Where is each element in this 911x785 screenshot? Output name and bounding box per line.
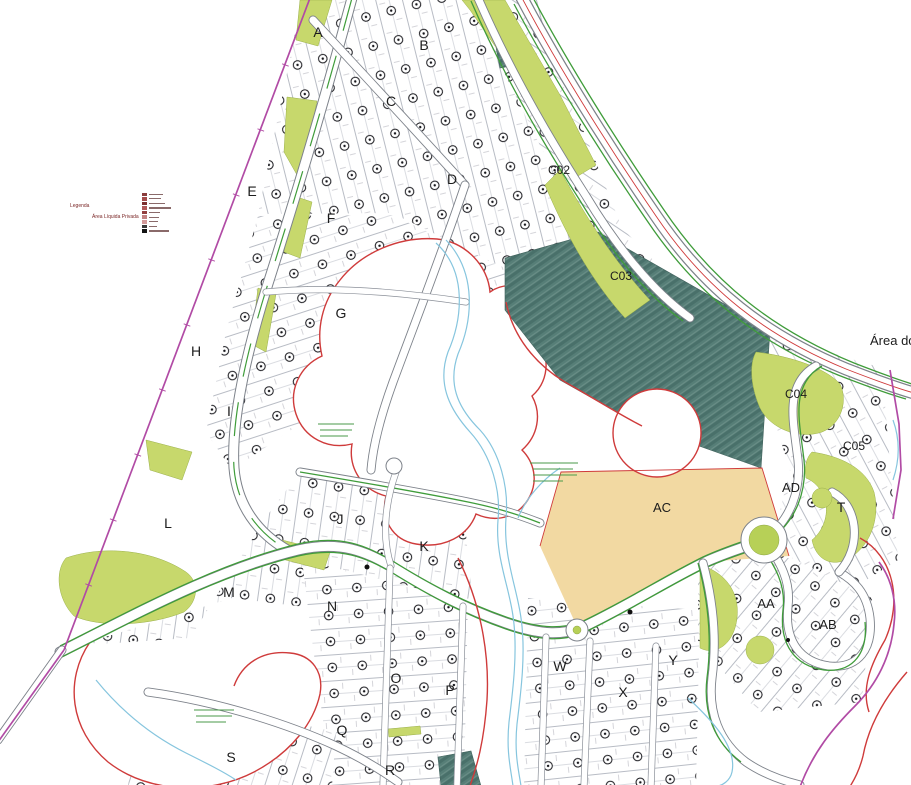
block-label-AD: AD — [782, 480, 800, 495]
legend-swatch — [142, 225, 147, 229]
legend-item-text — [149, 217, 159, 218]
block-label-G: G — [336, 305, 347, 321]
block-label-T: T — [837, 499, 846, 515]
block-label-AC: AC — [653, 500, 671, 515]
block-label-J: J — [337, 511, 344, 527]
preservation-circle — [613, 389, 701, 477]
culdesac-t — [812, 488, 832, 508]
block-label-P: P — [445, 682, 454, 698]
block-label-W: W — [553, 658, 567, 674]
block-label-A: A — [313, 24, 323, 40]
legend-swatch — [142, 193, 147, 197]
block-label-Y: Y — [668, 652, 678, 668]
block-label-S: S — [226, 749, 235, 765]
area-title-text: Área do — [870, 333, 911, 348]
legend-item — [142, 229, 171, 234]
legend-swatch — [142, 215, 147, 219]
block-label-C03: C03 — [610, 269, 632, 283]
block-label-E: E — [247, 183, 256, 199]
block-label-M: M — [223, 584, 235, 600]
legend-swatch — [142, 206, 147, 210]
block-label-C02: C02 — [548, 163, 570, 177]
block-label-C05: C05 — [843, 439, 865, 453]
block-label-C: C — [386, 93, 396, 109]
block-label-K: K — [419, 538, 429, 554]
site-plan-svg: Área do ABCDEFGHIJKLMNOPQRSTWXYAAABACADC… — [0, 0, 911, 785]
block-label-H: H — [191, 343, 201, 359]
legend-swatch — [142, 211, 147, 215]
block-label-L: L — [164, 515, 172, 531]
legend-item-text — [149, 230, 169, 231]
legend-area-label: Área Líquida Privada — [92, 214, 139, 220]
culdesac-aa — [746, 636, 774, 664]
block-label-AA: AA — [757, 596, 775, 611]
block-label-N: N — [327, 598, 337, 614]
legend-item-text — [149, 194, 163, 195]
legend-swatches — [142, 192, 171, 233]
legend: Legenda Área Líquida Privada — [70, 203, 139, 220]
legend-item-text — [149, 212, 160, 213]
legend-item-text — [149, 207, 171, 208]
block-label-I: I — [227, 403, 231, 419]
legend-swatch — [142, 202, 147, 206]
block-label-O: O — [391, 670, 402, 686]
site-plan-map: Área do ABCDEFGHIJKLMNOPQRSTWXYAAABACADC… — [0, 0, 911, 785]
legend-item-text — [149, 203, 165, 204]
block-label-R: R — [385, 762, 395, 778]
legend-swatch — [142, 220, 147, 224]
legend-item-text — [149, 198, 161, 199]
block-label-D: D — [447, 171, 457, 187]
legend-swatch — [142, 197, 147, 201]
block-label-F: F — [327, 210, 336, 226]
block-label-X: X — [618, 684, 628, 700]
legend-swatch — [142, 229, 147, 233]
legend-item-text — [149, 221, 158, 222]
legend-item-text — [149, 226, 157, 227]
legend-title: Legenda — [70, 203, 139, 209]
block-label-AB: AB — [819, 617, 836, 632]
block-label-C04: C04 — [785, 387, 807, 401]
block-label-Q: Q — [337, 722, 348, 738]
block-label-B: B — [419, 37, 428, 53]
